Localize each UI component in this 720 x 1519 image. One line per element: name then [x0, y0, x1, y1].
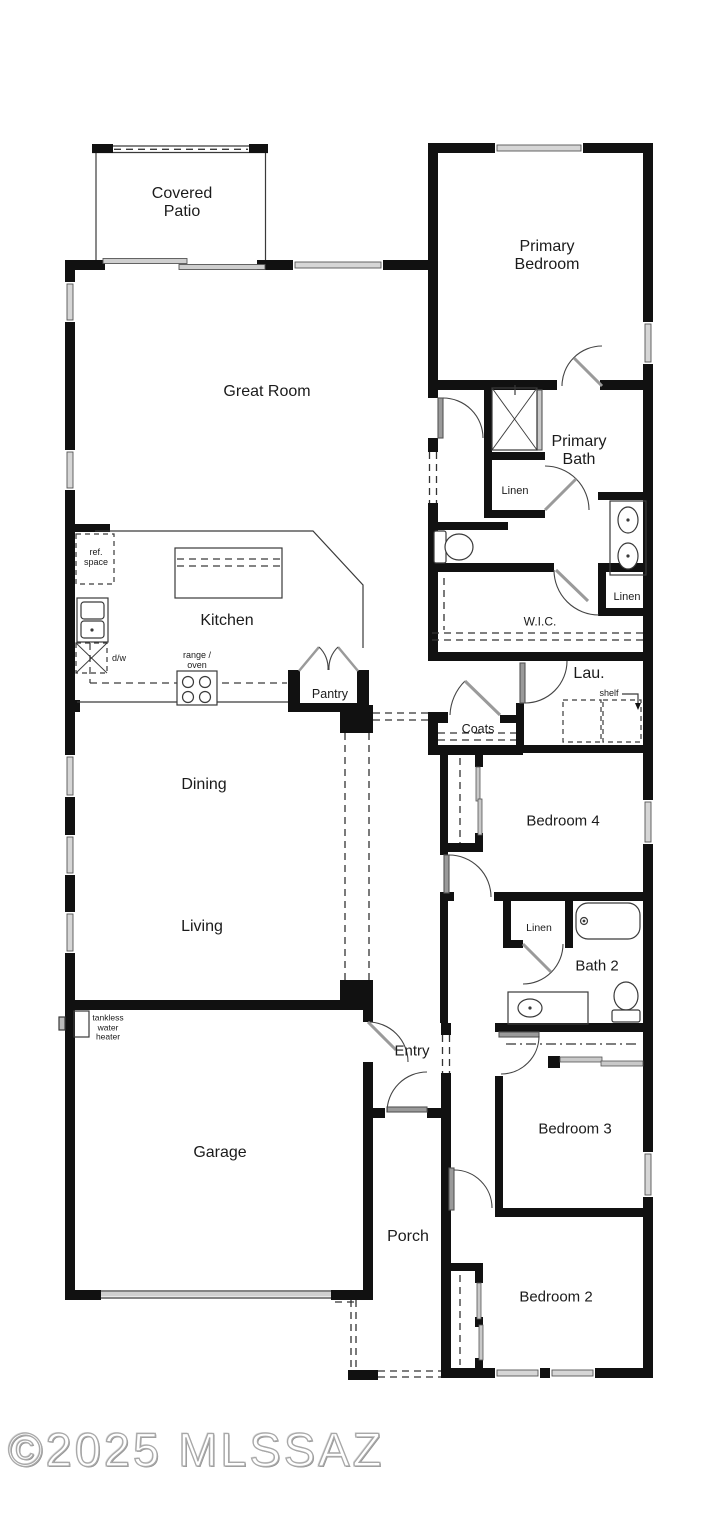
door-leaf	[444, 855, 449, 893]
windows	[65, 143, 653, 1378]
label-covered-patio: CoveredPatio	[152, 185, 212, 221]
label-linen-bath2: Linen	[526, 923, 552, 935]
door-leaf	[556, 570, 588, 601]
window-icon	[67, 284, 73, 320]
shelf-leader	[622, 694, 641, 710]
door-leaf	[520, 663, 525, 703]
label-pantry: Pantry	[312, 687, 348, 701]
walls	[65, 143, 653, 1380]
garage-door-icon	[101, 1291, 331, 1298]
kitchen-sink-icon	[77, 598, 108, 642]
label-bedroom4: Bedroom 4	[526, 814, 599, 831]
window-icon	[67, 837, 73, 873]
label-coats: Coats	[462, 722, 495, 736]
window-icon	[295, 262, 381, 268]
label-bath2: Bath 2	[575, 959, 618, 976]
door-leaf	[545, 479, 576, 510]
toilet-icon	[612, 982, 640, 1022]
floor-plan-page: CoveredPatio Great Room PrimaryBedroom P…	[0, 0, 720, 1519]
label-primary-bath: PrimaryBath	[551, 433, 606, 469]
window-icon	[645, 324, 651, 362]
label-living: Living	[181, 918, 223, 936]
door-leaf	[449, 1168, 454, 1210]
tankless-water-heater-icon	[59, 1011, 89, 1037]
label-linen-primary-bath: Linen	[502, 485, 529, 497]
window-icon	[497, 145, 581, 151]
door-leaf	[523, 944, 551, 972]
shower-door	[537, 390, 542, 450]
label-garage: Garage	[193, 1144, 246, 1162]
label-ref-space: ref.space	[84, 547, 108, 567]
door-leaf	[465, 681, 500, 715]
label-dining: Dining	[181, 776, 226, 794]
label-range-oven: range /oven	[183, 650, 211, 670]
label-primary-bedroom: PrimaryBedroom	[515, 238, 580, 274]
door-leaf	[338, 647, 358, 671]
sliding-door-icon	[103, 259, 265, 270]
label-kitchen: Kitchen	[200, 612, 253, 630]
toilet-icon	[434, 531, 473, 563]
vanity-icon	[508, 992, 588, 1024]
window-icon	[497, 1370, 538, 1376]
window-icon	[552, 1370, 593, 1376]
kitchen-island	[175, 548, 282, 598]
door-leaf	[574, 358, 602, 386]
floor-plan-drawing	[0, 0, 720, 1519]
door-leaf	[368, 1022, 396, 1050]
label-wic: W.I.C.	[524, 615, 557, 628]
label-bedroom2: Bedroom 2	[519, 1290, 592, 1307]
label-laundry: Lau.	[573, 665, 604, 683]
door-leaf	[387, 1107, 427, 1112]
door-leaf	[438, 398, 443, 438]
door-leaf	[499, 1032, 539, 1037]
window-icon	[67, 914, 73, 951]
washer-dryer-space	[563, 700, 641, 742]
door-leaf	[299, 647, 319, 671]
label-entry: Entry	[394, 1044, 429, 1061]
window-icon	[645, 1154, 651, 1195]
label-porch: Porch	[387, 1228, 429, 1246]
window-icon	[645, 802, 651, 842]
shower-icon	[492, 385, 537, 450]
covered-patio-wall-caps	[92, 144, 268, 153]
label-tankless-water-heater: tanklesswaterheater	[92, 1014, 123, 1043]
bathtub-icon	[576, 903, 640, 939]
watermark: ©2025 MLSSAZ	[8, 1422, 384, 1477]
window-icon	[67, 757, 73, 795]
label-shelf: shelf	[599, 688, 618, 698]
label-bedroom3: Bedroom 3	[538, 1122, 611, 1139]
label-great-room: Great Room	[223, 383, 310, 401]
window-icon	[67, 452, 73, 488]
label-linen-wic: Linen	[614, 591, 641, 603]
label-dishwasher: d/w	[112, 653, 126, 663]
